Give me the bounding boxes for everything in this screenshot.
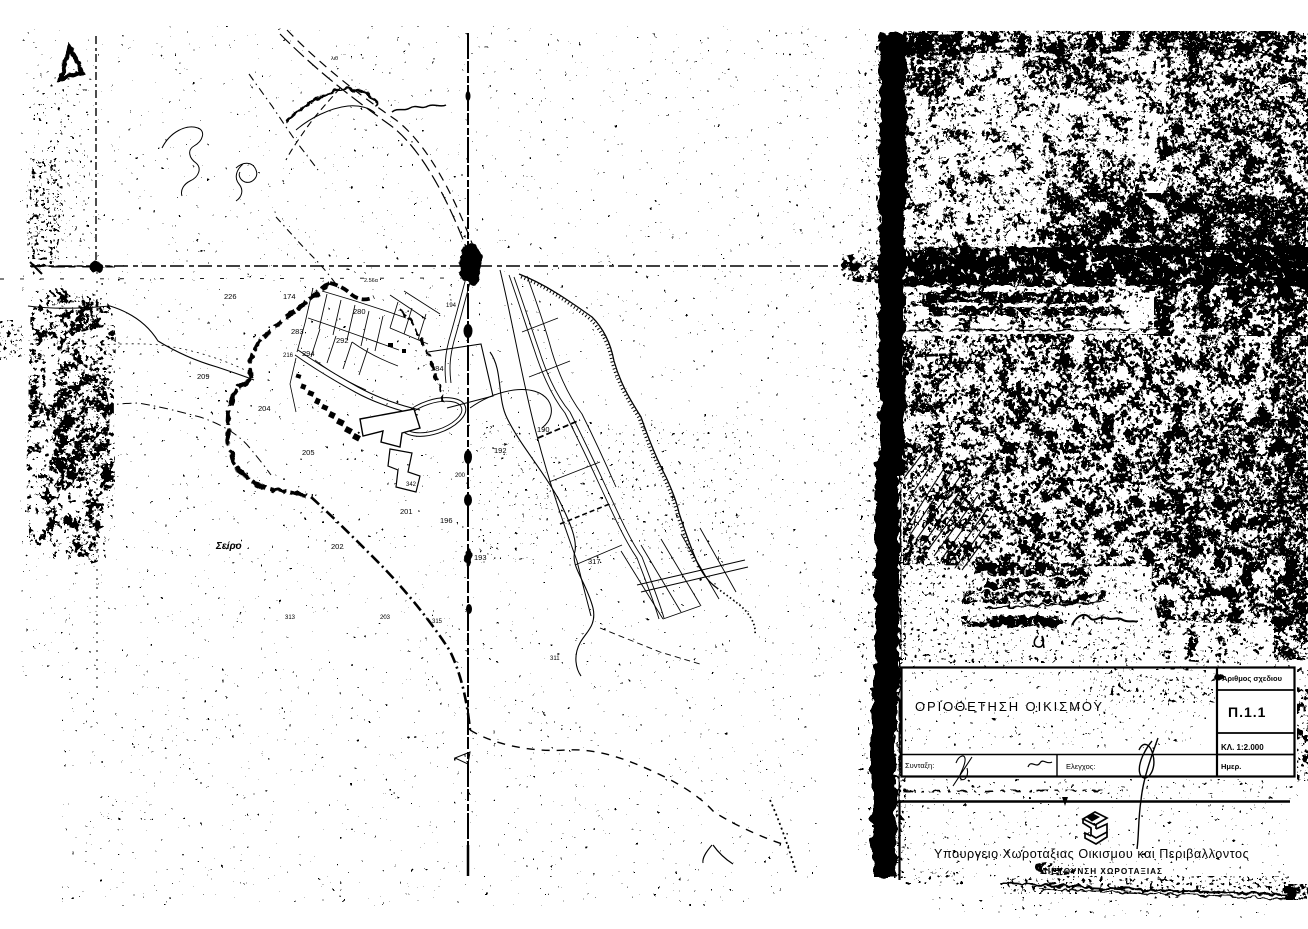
svg-text:196: 196 [440, 516, 453, 525]
svg-text:193: 193 [474, 553, 487, 562]
svg-text:190: 190 [537, 425, 550, 434]
svg-text:216: 216 [283, 353, 294, 359]
svg-text:202: 202 [331, 542, 344, 551]
svg-text:294: 294 [302, 349, 315, 358]
svg-text:Π.1.1: Π.1.1 [1228, 704, 1266, 720]
svg-text:205: 205 [302, 448, 315, 457]
svg-text:174: 174 [283, 292, 296, 301]
svg-text:280: 280 [353, 307, 366, 316]
svg-text:Σείρο: Σείρο [215, 541, 242, 552]
svg-text:209: 209 [197, 372, 210, 381]
svg-text:Ελεγχος:: Ελεγχος: [1066, 762, 1095, 771]
svg-text:226: 226 [224, 292, 237, 301]
svg-text:Συνταξη:: Συνταξη: [905, 761, 934, 770]
svg-text:292: 292 [336, 336, 349, 345]
svg-text:284: 284 [431, 364, 444, 373]
svg-text:203: 203 [380, 615, 391, 621]
svg-text:204: 204 [258, 404, 271, 413]
svg-text:2.56α: 2.56α [364, 278, 379, 284]
svg-text:Αριθμος σχεδιου: Αριθμος σχεδιου [1222, 674, 1283, 683]
svg-text:342: 342 [406, 482, 417, 488]
svg-text:194: 194 [446, 303, 457, 309]
svg-text:315: 315 [432, 619, 443, 625]
svg-text:313: 313 [285, 615, 296, 621]
svg-text:283: 283 [291, 327, 304, 336]
svg-text:317: 317 [588, 557, 601, 566]
svg-text:λιθ: λιθ [331, 56, 338, 62]
svg-text:ΚΛ. 1:2.000: ΚΛ. 1:2.000 [1221, 743, 1264, 752]
svg-text:Ημερ.: Ημερ. [1221, 762, 1241, 771]
svg-text:201: 201 [400, 507, 413, 516]
svg-text:200: 200 [455, 473, 466, 479]
svg-text:192: 192 [494, 446, 507, 455]
svg-text:311: 311 [550, 656, 560, 662]
